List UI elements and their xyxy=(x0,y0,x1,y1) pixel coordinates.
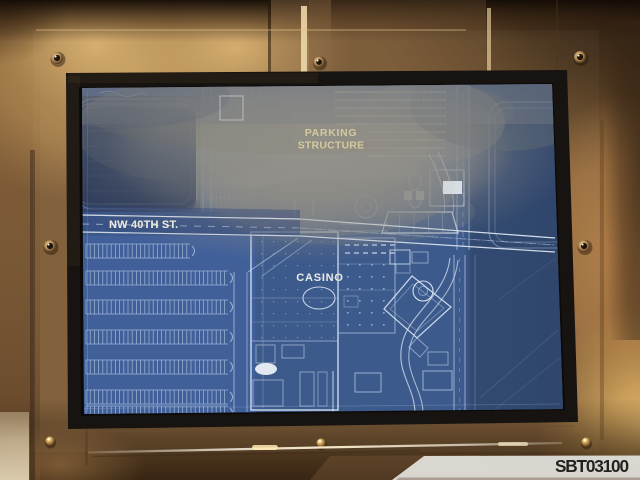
svg-text:PARKING: PARKING xyxy=(305,127,358,139)
svg-text:SBT03100: SBT03100 xyxy=(555,456,629,476)
svg-text:CASINO: CASINO xyxy=(296,272,344,284)
svg-text:NW 40TH ST.: NW 40TH ST. xyxy=(109,219,178,231)
svg-text:STRUCTURE: STRUCTURE xyxy=(298,140,365,152)
